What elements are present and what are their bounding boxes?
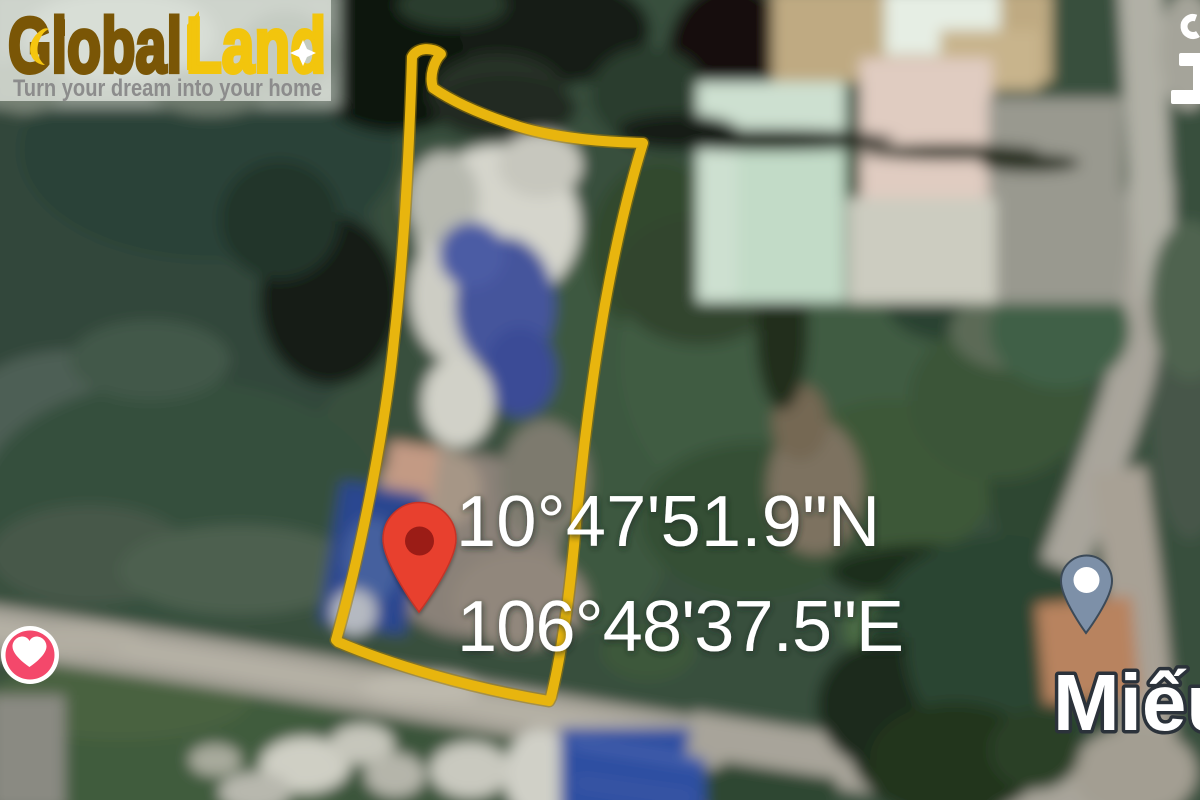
svg-text:10°47'51.9"N: 10°47'51.9"N [456,482,880,562]
svg-text:106°48'37.5"E: 106°48'37.5"E [457,587,904,667]
svg-text:Miếu: Miếu [1053,658,1200,747]
svg-text:Turn your dream into your home: Turn your dream into your home [13,75,322,102]
